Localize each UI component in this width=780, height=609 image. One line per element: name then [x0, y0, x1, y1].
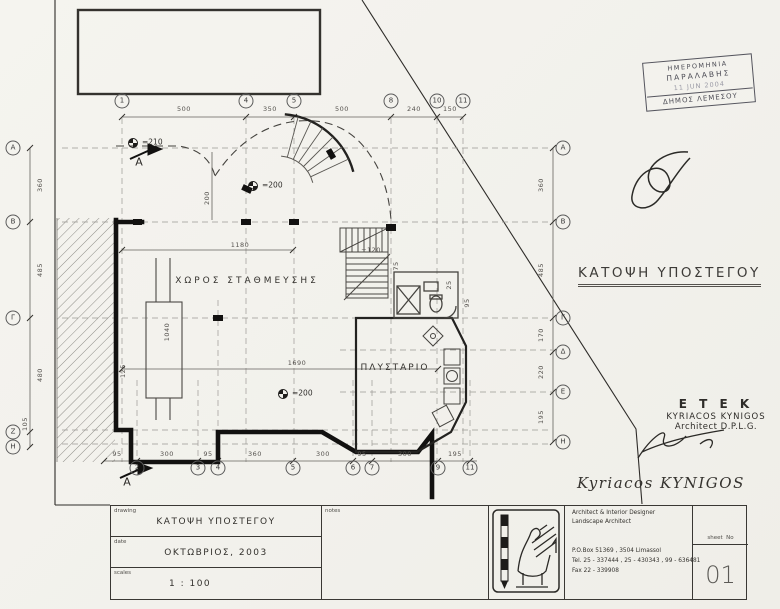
- dim-right-485: 485: [538, 263, 545, 277]
- dim-right-360: 360: [538, 178, 545, 192]
- dim-interior-1040: 1040: [164, 323, 171, 342]
- sheet-number: 01: [693, 552, 748, 599]
- date-value: ΟΚΤΩΒΡΙΟΣ, 2003: [111, 548, 321, 558]
- grid-bubble-top-5: 5: [287, 94, 302, 109]
- laundry-walls: [356, 318, 466, 452]
- firm-tel: Tel. 25 - 337444 , 25 - 430343 , 99 - 63…: [572, 558, 700, 564]
- architect-name: KYRIACOS KYNIGOS: [650, 412, 780, 422]
- grid-bubble-left-Z: Z: [6, 425, 21, 440]
- level-markers: [129, 139, 288, 399]
- grid-bubble-right-D: Δ: [556, 345, 571, 360]
- grid-bubble-top-11: 11: [456, 94, 471, 109]
- level-200b-label: =200: [292, 389, 313, 397]
- etek-label: E T E K: [650, 397, 780, 411]
- dim-interior-200: 200: [204, 191, 211, 205]
- dim-left-480: 480: [37, 368, 44, 382]
- dim-interior-1180: 1180: [231, 242, 250, 249]
- grid-bubble-top-8: 8: [384, 94, 399, 109]
- dim-bottom-300a: 300: [160, 451, 174, 458]
- logo-scale-bar: [501, 515, 508, 589]
- architect-title: Architect D.P.L.G.: [650, 422, 780, 432]
- grid-bubble-top-1: 1: [115, 94, 130, 109]
- plan-heading: ΚΑΤΟΨΗ ΥΠΟΣΤΕΓΟΥ: [578, 265, 761, 285]
- dim-bottom-300b: 300: [316, 451, 330, 458]
- logo-creature: [516, 525, 556, 587]
- grid-bubble-bottom-5: 5: [286, 461, 301, 476]
- dim-interior-75: 75: [393, 261, 400, 270]
- dim-interior-95: 95: [464, 298, 471, 307]
- room-label-laundry: ΠΛΥΣΤΑΡΙΟ: [361, 363, 430, 373]
- dim-bottom-95b: 95: [203, 451, 212, 458]
- dim-left-485: 485: [37, 263, 44, 277]
- dim-bottom-95a: 95: [112, 451, 121, 458]
- grid-bubble-left-H: H: [6, 440, 21, 455]
- bathroom: [394, 272, 458, 318]
- dim-top-350: 350: [263, 106, 277, 113]
- griffin-logo: [492, 509, 562, 595]
- level-210-label: =210: [142, 138, 163, 146]
- grid-bubble-bottom-7: 7: [365, 461, 380, 476]
- level-200a-label: =200: [262, 181, 283, 189]
- notes-cell: notes: [321, 506, 489, 599]
- receipt-stamp: ΗΜΕΡΟΜΗΝΙΑ ΠΑΡΑΛΑΒΗΣ 11 JUN 2004 ΔΗΜΟΣ Λ…: [642, 53, 756, 111]
- laundry-fixtures: [423, 326, 460, 427]
- grid-bubble-top-4: 4: [239, 94, 254, 109]
- stair-middle: [340, 228, 390, 300]
- dim-top-500a: 500: [177, 106, 191, 113]
- notes-label: notes: [325, 508, 340, 514]
- grid-bubble-right-E: E: [556, 385, 571, 400]
- drawing-label: drawing: [114, 508, 136, 514]
- dim-left-105: 105: [22, 417, 29, 431]
- grid-bubble-right-A: A: [556, 141, 571, 156]
- dim-left-360: 360: [37, 178, 44, 192]
- grid-centerlines: [62, 118, 552, 462]
- parcel-rectangle: [78, 10, 320, 94]
- grid-bubble-right-H: H: [556, 435, 571, 450]
- scanned-floor-plan: 1 4 5 8 10 11 500 350 500 240 150 2 3 4 …: [0, 0, 780, 609]
- slope-hatch: [57, 218, 115, 462]
- firm-cell: Architect & Interior Designer Landscape …: [564, 506, 747, 599]
- room-label-parking: ΧΩΡΟΣ ΣΤΑΘΜΕΥΣΗΣ: [175, 276, 319, 286]
- dim-interior-1690: 1690: [288, 360, 307, 367]
- firm-address: P.O.Box 51369 , 3504 Limassol: [572, 548, 661, 554]
- grid-bubble-left-G: Γ: [6, 311, 21, 326]
- titleblock-date-row: date ΟΚΤΩΒΡΙΟΣ, 2003: [111, 537, 321, 568]
- dim-bottom-95c: 95: [357, 451, 366, 458]
- dim-bottom-195: 195: [448, 451, 462, 458]
- sheet-cell: sheet No 01: [692, 506, 748, 599]
- architect-block: E T E K KYRIACOS KYNIGOS Architect D.P.L…: [650, 397, 780, 432]
- date-label: date: [114, 539, 126, 545]
- grid-bubble-bottom-6: 6: [346, 461, 361, 476]
- sheet-label: sheet No: [693, 535, 748, 541]
- dim-right-195: 195: [538, 410, 545, 424]
- canopy-dashed-edge: [116, 121, 391, 220]
- firm-line-2: Landscape Architect: [572, 519, 631, 525]
- grid-bubble-right-B: B: [556, 215, 571, 230]
- dim-bottom-300c: 300: [398, 451, 412, 458]
- grid-bubble-bottom-3: 3: [191, 461, 206, 476]
- dim-interior-125: 125: [120, 364, 127, 378]
- dim-right-220: 220: [538, 365, 545, 379]
- dim-top-240: 240: [407, 106, 421, 113]
- grid-bubble-bottom-2: 2: [130, 461, 145, 476]
- stair-level-label: +120: [361, 247, 381, 254]
- dim-right-170: 170: [538, 328, 545, 342]
- firm-line-1: Architect & Interior Designer: [572, 510, 655, 516]
- dim-bottom-360: 360: [248, 451, 262, 458]
- logo-cell: [488, 506, 565, 599]
- dim-interior-25: 25: [446, 280, 453, 289]
- drawing-value: ΚΑΤΟΨΗ ΥΠΟΣΤΕΓΟΥ: [111, 517, 321, 527]
- grid-bubble-bottom-9: 9: [431, 461, 446, 476]
- stair-curved: [281, 114, 353, 182]
- grid-bubble-left-B: B: [6, 215, 21, 230]
- grid-bubble-left-A: A: [6, 141, 21, 156]
- dim-top-500b: 500: [335, 106, 349, 113]
- section-letter-top: A: [135, 156, 143, 169]
- scales-value: 1 : 100: [111, 579, 321, 589]
- title-block: drawing ΚΑΤΟΨΗ ΥΠΟΣΤΕΓΟΥ date ΟΚΤΩΒΡΙΟΣ,…: [110, 505, 747, 600]
- titleblock-scales-row: scales 1 : 100: [111, 568, 321, 599]
- grid-bubble-bottom-11: 11: [463, 461, 478, 476]
- dim-top-150: 150: [443, 106, 457, 113]
- section-letter-bottom: A: [123, 476, 131, 489]
- scales-label: scales: [114, 570, 131, 576]
- titleblock-drawing-row: drawing ΚΑΤΟΨΗ ΥΠΟΣΤΕΓΟΥ: [111, 506, 321, 537]
- architect-signature-name: Kyriacos KYNIGOS: [577, 474, 745, 492]
- grid-bubble-right-G: Γ: [556, 311, 571, 326]
- firm-fax: Fax 22 - 339908: [572, 568, 619, 574]
- title-block-left: drawing ΚΑΤΟΨΗ ΥΠΟΣΤΕΓΟΥ date ΟΚΤΩΒΡΙΟΣ,…: [111, 506, 321, 599]
- sheet-divider: [693, 544, 748, 545]
- columns: [133, 148, 396, 321]
- grid-bubble-bottom-4: 4: [211, 461, 226, 476]
